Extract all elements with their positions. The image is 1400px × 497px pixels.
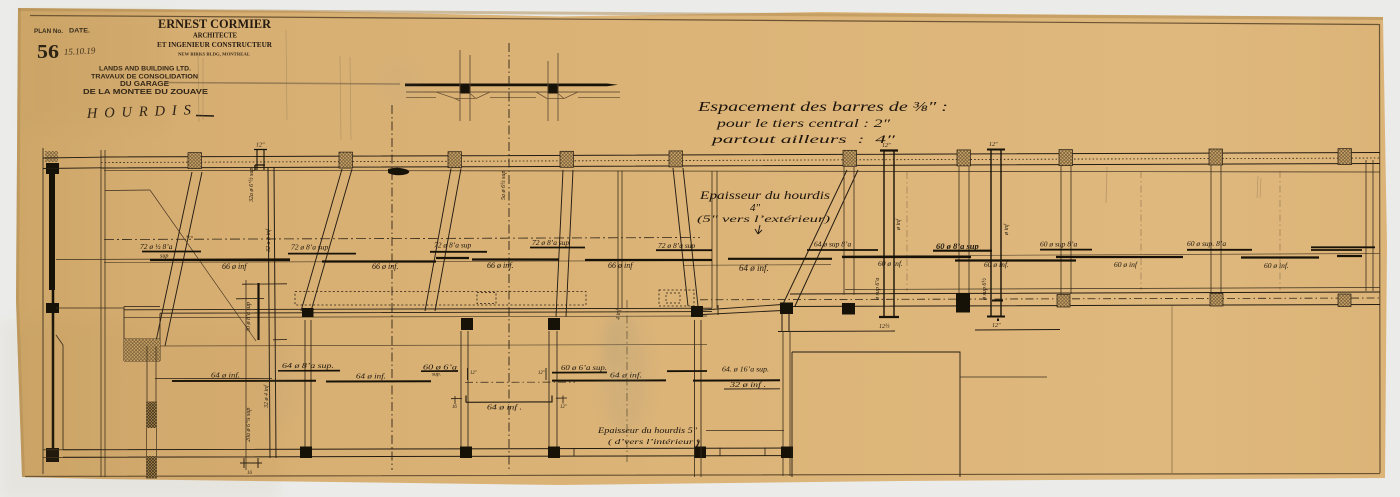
- svg-text:Espacement des barres de ⅜″ :: Espacement des barres de ⅜″ :: [697, 99, 948, 114]
- svg-text:60 ø inf.: 60 ø inf.: [1264, 261, 1289, 270]
- svg-text:5a ø 6½ sup: 5a ø 6½ sup: [500, 171, 507, 200]
- svg-text:72 ø 8’a sup: 72 ø 8’a sup: [658, 241, 696, 250]
- svg-text:72 ø 8’a sup: 72 ø 8’a sup: [434, 241, 472, 250]
- svg-text:12″: 12″: [470, 371, 478, 376]
- svg-text:64. ø 16’a sup.: 64. ø 16’a sup.: [722, 366, 769, 374]
- svg-text:32a ø 6’½ sup: 32a ø 6’½ sup: [248, 168, 255, 203]
- svg-text:64 ø inf.: 64 ø inf.: [356, 372, 386, 381]
- svg-text:72 ø ½ 8’a: 72 ø ½ 8’a: [140, 242, 173, 251]
- svg-text:⅜-o: ⅜-o: [186, 234, 194, 239]
- svg-text:64 ø sup 8’a: 64 ø sup 8’a: [814, 240, 852, 249]
- svg-text:12″: 12″: [992, 323, 1001, 329]
- svg-text:12″: 12″: [256, 143, 265, 149]
- svg-text:66 ø inf.: 66 ø inf.: [372, 262, 398, 271]
- svg-text:sup: sup: [160, 254, 168, 260]
- svg-text:32 ø inf .: 32 ø inf .: [729, 381, 767, 389]
- svg-text:partout ailleurs : 4″: partout ailleurs : 4″: [710, 134, 895, 146]
- svg-text:72 ø 8’a sup: 72 ø 8’a sup: [291, 243, 329, 252]
- svg-text:(5″ vers l’extérieur): (5″ vers l’extérieur): [697, 214, 830, 225]
- svg-text:60 ø inf.: 60 ø inf.: [878, 259, 903, 268]
- svg-text:ET INGENIEUR CONSTRUCTEUR: ET INGENIEUR CONSTRUCTEUR: [157, 42, 272, 49]
- svg-text:pour le tiers central : 2″: pour le tiers central : 2″: [715, 118, 890, 130]
- svg-text:ERNEST CORMIER: ERNEST CORMIER: [158, 17, 272, 31]
- svg-text:sup.: sup.: [432, 372, 441, 378]
- svg-text:12″: 12″: [560, 405, 568, 410]
- svg-text:ø sup 6’a: ø sup 6’a: [875, 278, 881, 301]
- svg-text:64 ø inf .: 64 ø inf .: [487, 403, 522, 412]
- svg-text:12″: 12″: [538, 371, 546, 376]
- svg-text:60 ø sup 8’a: 60 ø sup 8’a: [1040, 240, 1078, 249]
- svg-text:Epaisseur du hourdis: Epaisseur du hourdis: [699, 190, 831, 202]
- svg-text:( d’vers l’intérieur ): ( d’vers l’intérieur ): [608, 437, 701, 446]
- svg-text:12½: 12½: [879, 323, 890, 330]
- svg-text:4″: 4″: [750, 202, 761, 214]
- svg-text:16: 16: [452, 405, 457, 410]
- svg-text:66 ø inf: 66 ø inf: [222, 262, 248, 271]
- svg-text:66 ø inf: 66 ø inf: [608, 261, 634, 270]
- svg-text:ø inf: ø inf: [895, 218, 902, 231]
- svg-text:NEW BIRKS BLDG, MONTREAL: NEW BIRKS BLDG, MONTREAL: [178, 52, 250, 57]
- svg-text:32 a ø inf: 32 a ø inf: [265, 228, 272, 253]
- svg-text:72 ø 8’a sup: 72 ø 8’a sup: [532, 238, 570, 247]
- svg-text:60 ø 6’a sup.: 60 ø 6’a sup.: [561, 364, 607, 372]
- svg-text:66 ø inf.: 66 ø inf.: [487, 261, 513, 270]
- svg-text:ø inf: ø inf: [1003, 223, 1010, 236]
- svg-text:60 ø inf: 60 ø inf: [1114, 260, 1138, 269]
- svg-text:ARCHITECTE: ARCHITECTE: [193, 32, 237, 40]
- svg-text:ø sup 6½: ø sup 6½: [981, 278, 988, 301]
- svg-text:60 ø inf.: 60 ø inf.: [984, 260, 1009, 269]
- svg-text:12″: 12″: [989, 142, 998, 148]
- svg-text:60 ø sup. 8’a: 60 ø sup. 8’a: [1187, 239, 1226, 248]
- svg-text:64 ø inf.: 64 ø inf.: [739, 263, 769, 273]
- svg-text:60 ø 8’a sup: 60 ø 8’a sup: [936, 241, 979, 251]
